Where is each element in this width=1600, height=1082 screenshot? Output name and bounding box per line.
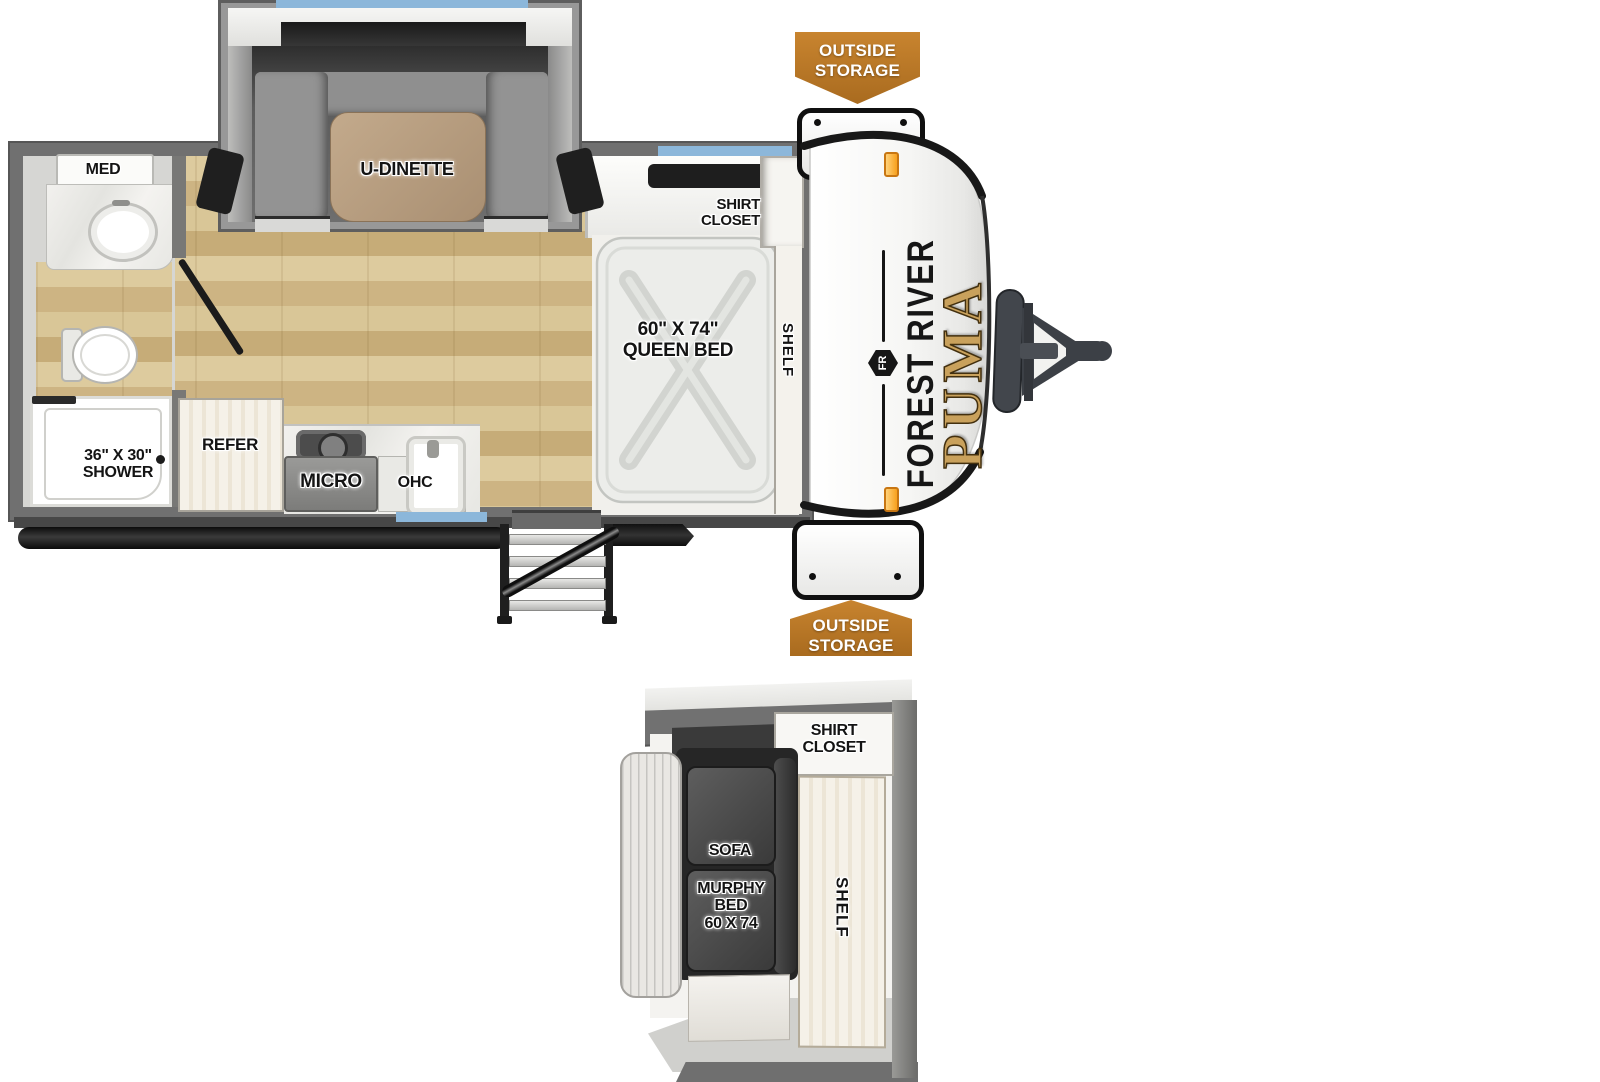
shower-drain-icon bbox=[156, 455, 165, 464]
refer-label: REFER bbox=[178, 436, 282, 454]
kitchen-window bbox=[396, 512, 487, 522]
slideout-ledge-right bbox=[484, 216, 548, 232]
kitchen-faucet-icon bbox=[427, 440, 439, 458]
logo-swoosh-left-icon bbox=[882, 384, 885, 476]
logo-row: FR bbox=[868, 250, 898, 476]
queen-bed-mattress bbox=[595, 236, 780, 504]
med-label: MED bbox=[56, 161, 150, 178]
logo-swoosh-right-icon bbox=[882, 250, 885, 342]
forest-river-hex-icon: FR bbox=[868, 350, 898, 376]
step-foot bbox=[602, 616, 617, 624]
hitch-assembly bbox=[990, 285, 1115, 420]
headboard-tv-inset bbox=[648, 164, 775, 188]
awning-tube bbox=[18, 527, 508, 549]
inset-sofa-armrest bbox=[774, 758, 796, 974]
inset-murphy-bed-label: MURPHY BED 60 X 74 bbox=[686, 880, 776, 932]
step-foot bbox=[497, 616, 512, 624]
queen-bed-label: 60" X 74" QUEEN BED bbox=[595, 320, 761, 361]
inset-sofa-label: SOFA bbox=[686, 842, 774, 859]
slideout-window bbox=[276, 0, 528, 8]
rv-floorplan: MED 36" X 30" SHOWER REFER MICRO OHC 60 bbox=[0, 0, 1600, 1082]
ohc-label: OHC bbox=[382, 474, 448, 491]
dinette-left-cushion bbox=[255, 72, 328, 218]
shower-fixture-icon bbox=[32, 396, 76, 404]
sink bbox=[88, 202, 158, 262]
compartment-latch-icon bbox=[809, 573, 816, 580]
u-dinette-label: U-DINETTE bbox=[330, 160, 484, 179]
storage-compartment-bottom bbox=[792, 520, 924, 600]
faucet-icon bbox=[112, 200, 130, 206]
toilet-seat-line bbox=[80, 334, 130, 376]
step-rail-left bbox=[500, 524, 509, 618]
slideout-ledge-left bbox=[255, 216, 330, 232]
step-tread bbox=[509, 600, 606, 611]
bedroom-window bbox=[658, 146, 792, 156]
shower-label: 36" X 30" SHOWER bbox=[58, 447, 178, 482]
inset-shelf-label: SHELF bbox=[832, 872, 850, 942]
refrigerator bbox=[178, 398, 284, 512]
inset-right-wall bbox=[892, 700, 917, 1078]
inset-foot-cabinet bbox=[688, 974, 790, 1042]
outside-storage-banner-top: OUTSIDE STORAGE bbox=[795, 32, 920, 104]
outside-storage-banner-bottom: OUTSIDE STORAGE bbox=[790, 600, 912, 656]
inset-bottom-wall bbox=[676, 1062, 918, 1082]
entry-steps bbox=[495, 520, 630, 626]
bathroom-wall-upper bbox=[172, 156, 186, 258]
compartment-latch-icon bbox=[894, 573, 901, 580]
micro-label: MICRO bbox=[284, 472, 378, 493]
dinette-right-cushion bbox=[486, 72, 548, 218]
shirt-closet-label: SHIRT CLOSET bbox=[668, 197, 760, 229]
inset-folded-mattress bbox=[620, 752, 682, 998]
